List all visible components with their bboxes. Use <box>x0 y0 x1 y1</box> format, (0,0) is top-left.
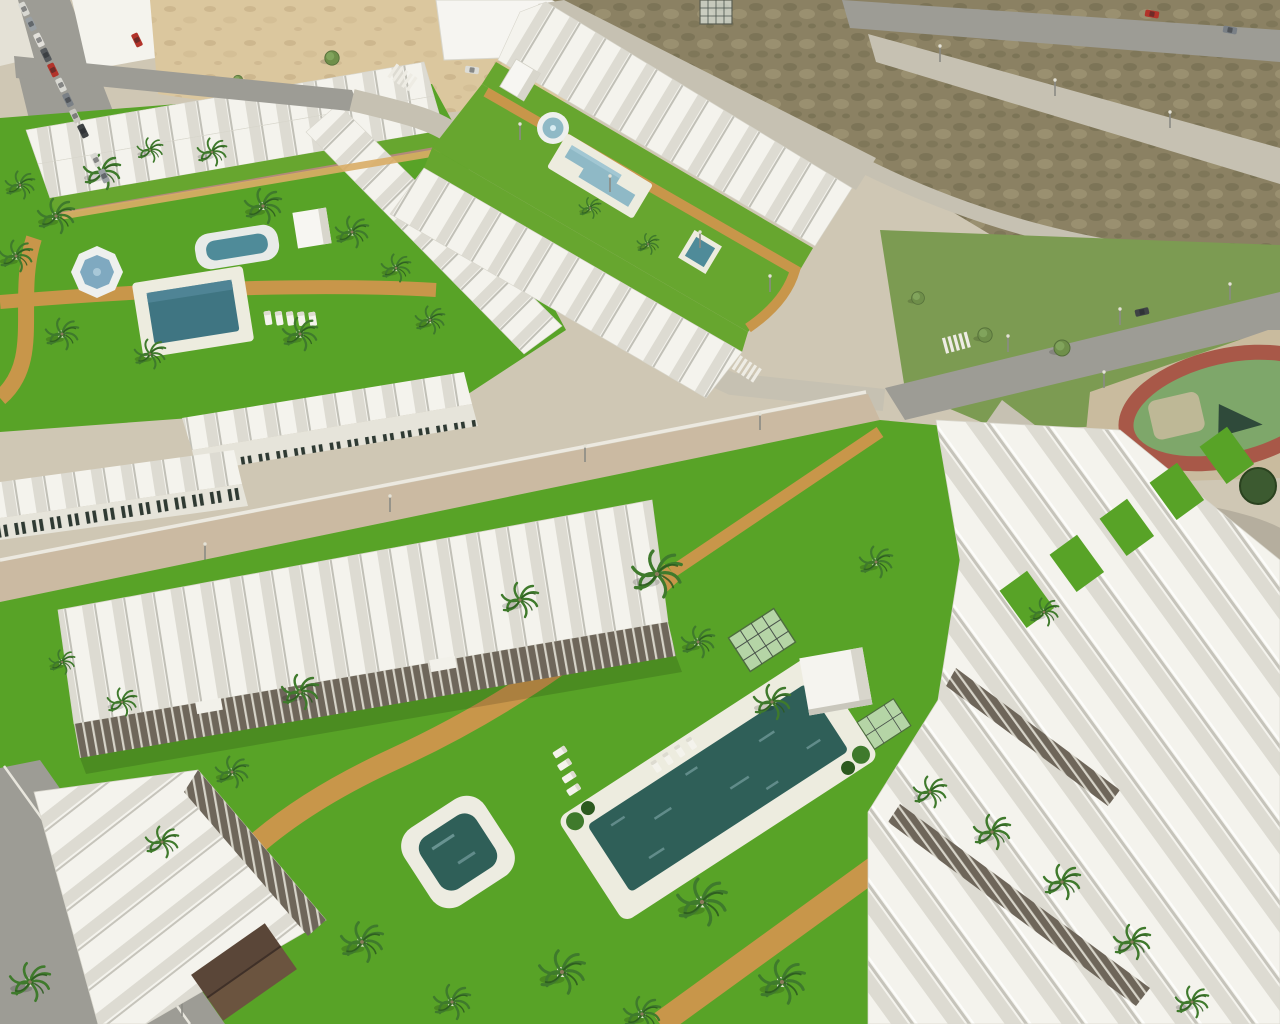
scene-canvas: Aerial 3D architectural render of a new-… <box>0 0 1280 1024</box>
aerial-render: Aerial 3D architectural render of a new-… <box>0 0 1280 1024</box>
storage-cube <box>799 647 872 715</box>
glass-pergola <box>700 0 732 24</box>
storage-cube <box>292 208 331 249</box>
